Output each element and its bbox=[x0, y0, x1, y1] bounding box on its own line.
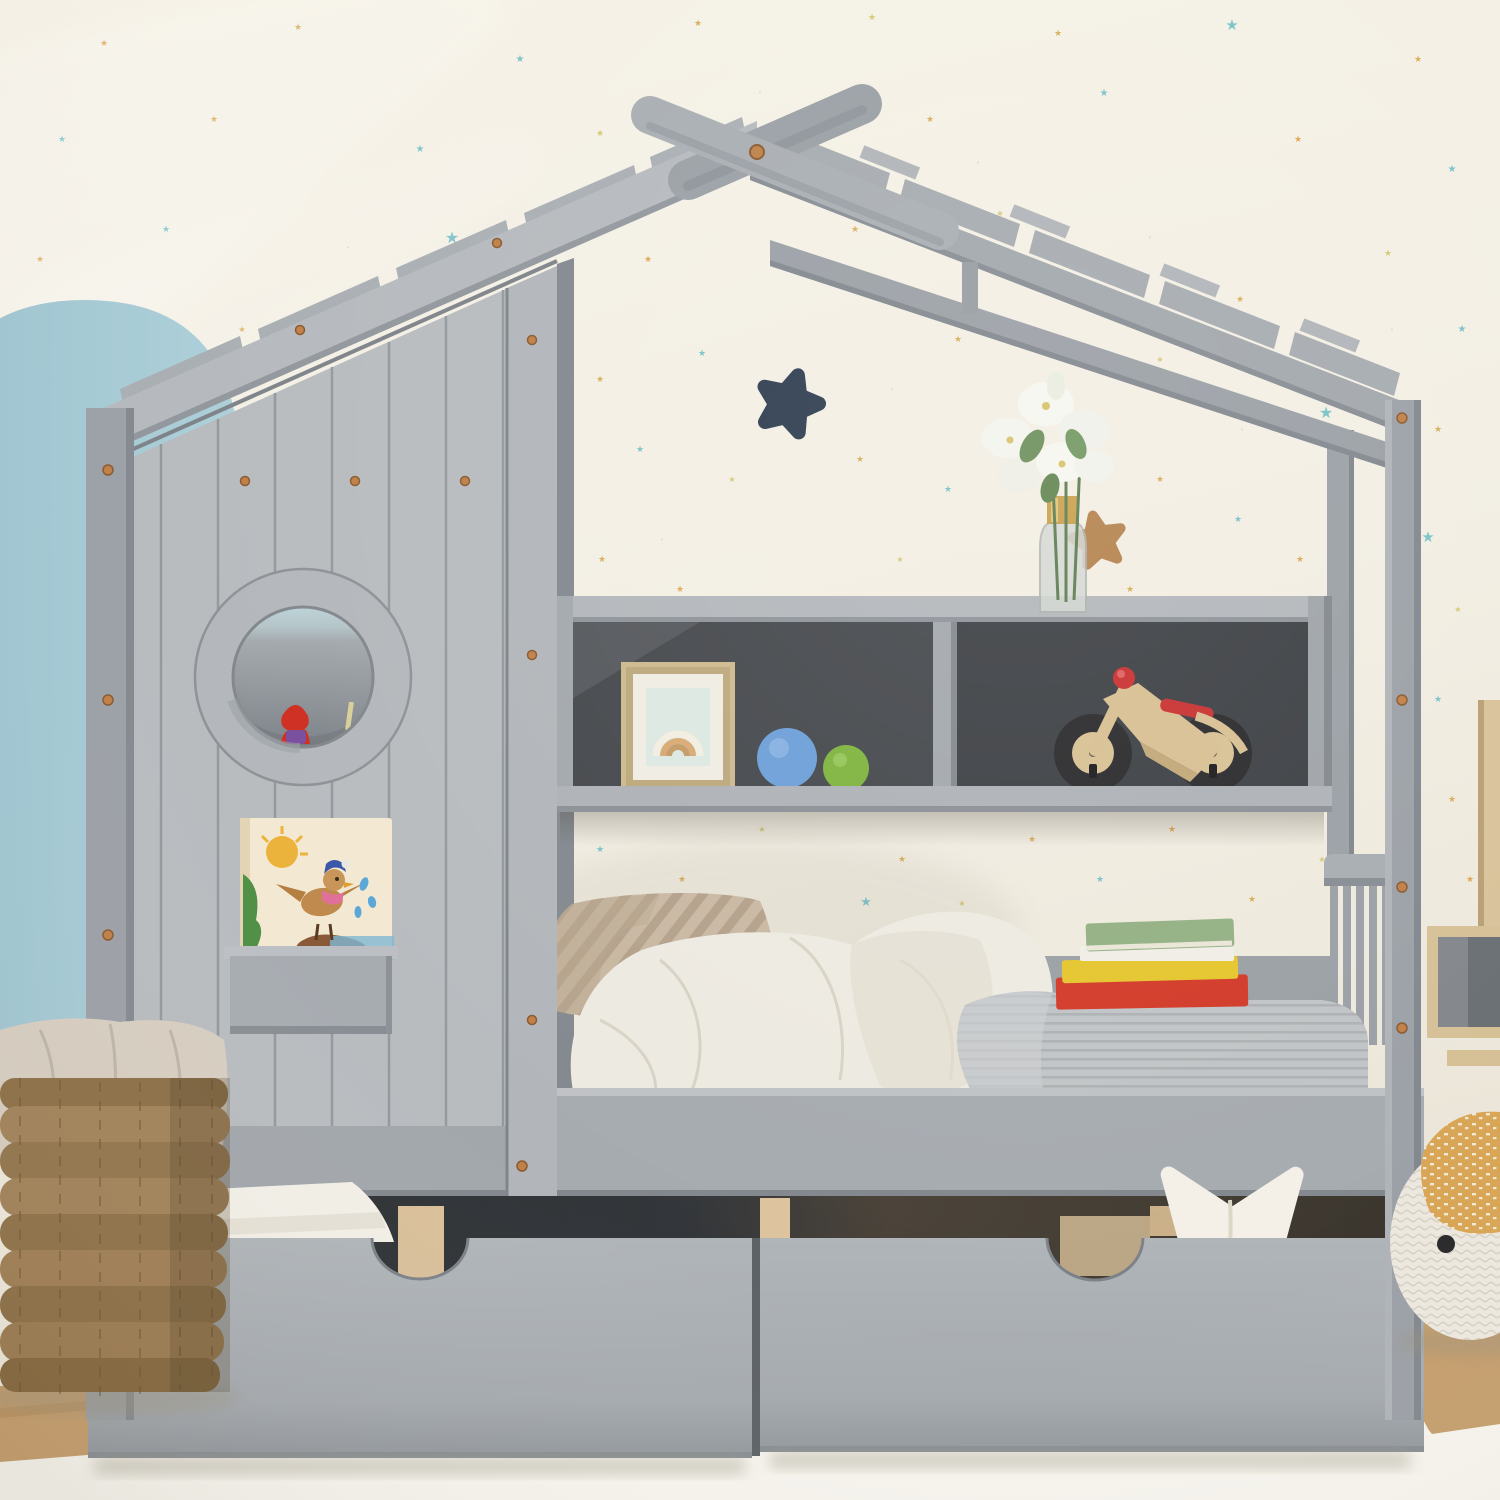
product-photo-stage: ★★★★★★★★★★★★•★★★★★★★★★★★★★★★★★★★★★★★★★★★… bbox=[0, 0, 1500, 1500]
lighting-vignette bbox=[0, 0, 1500, 1500]
scene-svg: ★★★★★★★★★★★★•★★★★★★★★★★★★★★★★★★★★★★★★★★★… bbox=[0, 0, 1500, 1500]
